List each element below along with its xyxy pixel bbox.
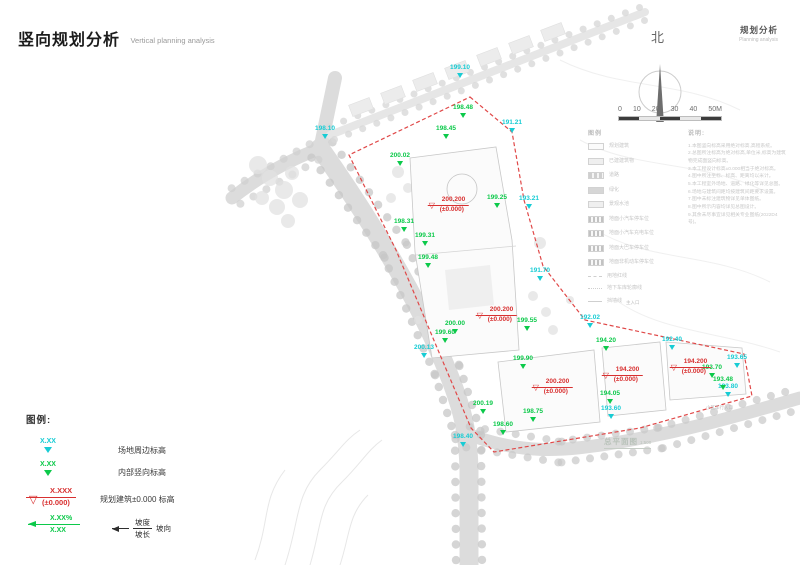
street-tree-icon bbox=[636, 4, 643, 11]
street-tree-icon bbox=[430, 98, 437, 105]
internal-elevation-marker: 200.19 bbox=[473, 401, 493, 414]
elevation-triangle-icon bbox=[669, 345, 675, 350]
internal-elevation-triangle-icon bbox=[44, 470, 52, 476]
street-tree-icon bbox=[787, 408, 795, 416]
base-legend-label: 地面大巴车停车位 bbox=[609, 246, 649, 251]
legend-datum-symbol: ▽ X.XXX (±0.000) bbox=[26, 486, 76, 508]
street-tree-icon bbox=[241, 177, 249, 185]
street-tree-icon bbox=[524, 453, 532, 461]
north-label: 北 bbox=[651, 27, 664, 46]
internal-elevation-marker: 193.48 bbox=[713, 377, 733, 390]
street-tree-icon bbox=[447, 422, 455, 430]
street-tree-icon bbox=[306, 140, 314, 148]
elevation-triangle-icon bbox=[425, 263, 431, 268]
street-tree-icon bbox=[539, 456, 547, 464]
legend-slope-symbol: X.XX% X.XX bbox=[28, 515, 80, 534]
datum-triangle-icon: ▽ bbox=[603, 371, 609, 381]
street-tree-icon bbox=[528, 60, 535, 67]
elevation-value: 192.40 bbox=[662, 336, 682, 343]
street-tree-icon bbox=[314, 156, 322, 164]
elevation-triangle-icon bbox=[608, 414, 614, 419]
building-datum-label: ▽200.200(±0.000) bbox=[532, 378, 573, 396]
base-plan-legend-rows: 规划建筑已建建筑物道路绿化景观水池地面小汽车停车位地面小汽车充电车位地面大巴车停… bbox=[588, 143, 654, 304]
street-tree-icon bbox=[557, 50, 564, 57]
street-tree-icon bbox=[486, 77, 493, 84]
elevation-value: 198.48 bbox=[453, 104, 473, 111]
internal-elevation-marker: 199.31 bbox=[415, 233, 435, 246]
base-legend-label: 地面小汽车充电车位 bbox=[609, 231, 654, 236]
base-legend-label: 道路 bbox=[609, 173, 619, 178]
elevation-value: 199.31 bbox=[415, 232, 435, 239]
slope-direction-arrow-icon bbox=[112, 528, 129, 529]
site-elevation-marker: 193.65 bbox=[727, 355, 747, 368]
site-elevation-marker: 192.02 bbox=[580, 315, 600, 328]
street-tree-icon bbox=[444, 93, 451, 100]
street-tree-icon bbox=[335, 191, 343, 199]
base-plan-title: 总平面图1:500 bbox=[604, 436, 651, 449]
elevation-value: 198.40 bbox=[453, 433, 473, 440]
elevation-value: 199.55 bbox=[517, 317, 537, 324]
street-tree-icon bbox=[451, 447, 459, 455]
street-tree-icon bbox=[627, 22, 634, 29]
street-tree-icon bbox=[478, 556, 486, 564]
street-tree-icon bbox=[542, 435, 550, 443]
elevation-value: 192.02 bbox=[580, 314, 600, 321]
elevation-value: 199.10 bbox=[450, 64, 470, 71]
street-tree-icon bbox=[673, 440, 681, 448]
elevation-value: 193.48 bbox=[713, 376, 733, 383]
legend-internal-label: 内部竖向标高 bbox=[118, 467, 166, 478]
street-tree-icon bbox=[640, 426, 648, 434]
elevation-triangle-icon bbox=[520, 364, 526, 369]
elevation-value: 198.10 bbox=[315, 125, 335, 132]
scale-tick-label: 10 bbox=[633, 106, 641, 113]
street-tree-icon bbox=[383, 213, 391, 221]
elevation-triangle-icon bbox=[442, 338, 448, 343]
street-tree-icon bbox=[293, 148, 301, 156]
internal-elevation-marker: 198.75 bbox=[523, 409, 543, 422]
elevation-value: 199.90 bbox=[513, 355, 533, 362]
elevation-triangle-icon bbox=[322, 134, 328, 139]
elevation-value: 191.21 bbox=[502, 119, 522, 126]
legend-swatch-icon bbox=[588, 187, 604, 194]
street-tree-icon bbox=[365, 188, 373, 196]
slope-fraction: 坡度 坡长 bbox=[133, 518, 152, 540]
street-tree-icon bbox=[687, 436, 695, 444]
legend-swatch-icon bbox=[588, 172, 604, 179]
street-tree-icon bbox=[702, 432, 710, 440]
building-datum-label: ▽200.200(±0.000) bbox=[428, 196, 469, 214]
street-tree-icon bbox=[753, 396, 761, 404]
internal-elevation-marker: 194.05 bbox=[600, 391, 620, 404]
note-line: 2.总图所注标高为绝对标高,单位米,标高为建筑物完成面竖向标高。 bbox=[688, 150, 788, 165]
street-tree-icon bbox=[500, 71, 507, 78]
notes-lines: 1.本图竖向标高采用绝对标高,高程系统。2.总图所注标高为绝对标高,单位米,标高… bbox=[688, 143, 788, 227]
elevation-value: 193.60 bbox=[601, 405, 621, 412]
street-tree-icon bbox=[667, 420, 675, 428]
site-elevation-marker: 193.21 bbox=[519, 196, 539, 209]
site-elevation-marker: 199.10 bbox=[450, 65, 470, 78]
base-plan-legend: 图例 规划建筑已建建筑物道路绿化景观水池地面小汽车停车位地面小汽车充电车位地面大… bbox=[588, 131, 654, 311]
street-tree-icon bbox=[613, 28, 620, 35]
street-tree-icon bbox=[385, 264, 393, 272]
legend-site-marker-symbol: X.XX bbox=[40, 438, 56, 453]
elevation-value: 199.48 bbox=[418, 254, 438, 261]
base-legend-row: 道路 bbox=[588, 172, 654, 179]
street-tree-icon bbox=[301, 163, 309, 171]
site-elevation-marker: 198.10 bbox=[315, 126, 335, 139]
elevation-triangle-icon bbox=[421, 353, 427, 358]
building-datum-label: ▽194.200(±0.000) bbox=[602, 366, 643, 384]
elevation-triangle-icon bbox=[537, 276, 543, 281]
note-line: 8.图中所示内容均详见总图设计。 bbox=[688, 204, 788, 212]
street-tree-icon bbox=[629, 448, 637, 456]
roads-layer bbox=[232, 12, 800, 565]
street-tree-icon bbox=[558, 458, 566, 466]
street-tree-icon bbox=[622, 9, 629, 16]
elevation-triangle-icon bbox=[524, 326, 530, 331]
street-tree-icon bbox=[439, 80, 446, 87]
street-tree-icon bbox=[371, 241, 379, 249]
street-tree-icon bbox=[345, 131, 352, 138]
legend-line-icon bbox=[588, 288, 602, 289]
street-tree-icon bbox=[580, 26, 587, 33]
base-legend-row: 已建建筑物 bbox=[588, 158, 654, 165]
elevation-triangle-icon bbox=[460, 442, 466, 447]
notes-title: 说明: bbox=[688, 130, 788, 140]
street-tree-icon bbox=[730, 424, 738, 432]
street-tree-icon bbox=[477, 509, 485, 517]
street-tree-icon bbox=[767, 392, 775, 400]
street-tree-icon bbox=[626, 428, 634, 436]
legend-slope-length: X.XX bbox=[28, 527, 80, 534]
street-tree-icon bbox=[477, 493, 485, 501]
street-tree-icon bbox=[537, 42, 544, 49]
base-legend-row: 景观水池 bbox=[588, 201, 654, 208]
street-tree-icon bbox=[744, 420, 752, 428]
slope-denominator: 坡长 bbox=[133, 529, 152, 539]
street-tree-icon bbox=[477, 462, 485, 470]
street-tree-icon bbox=[455, 362, 463, 370]
datum-triangle-icon: ▽ bbox=[477, 311, 483, 321]
legend-slope-direction: 坡度 坡长 坡向 bbox=[112, 518, 171, 540]
street-tree-icon bbox=[527, 433, 535, 441]
elevation-triangle-icon bbox=[480, 409, 486, 414]
street-tree-icon bbox=[337, 151, 345, 159]
note-line: 5.本工程室外场地、道路、绿化等详见总图。 bbox=[688, 181, 788, 189]
elevation-triangle-icon bbox=[603, 346, 609, 351]
elevation-triangle-icon bbox=[530, 417, 536, 422]
street-tree-icon bbox=[326, 179, 334, 187]
legend-swatch-icon bbox=[588, 259, 604, 266]
street-tree-icon bbox=[435, 383, 443, 391]
street-tree-icon bbox=[472, 82, 479, 89]
scale-tick-label: 20 bbox=[652, 106, 660, 113]
base-legend-label: 规划建筑 bbox=[609, 144, 629, 149]
elevation-value: 200.02 bbox=[390, 152, 410, 159]
street-tree-icon bbox=[659, 444, 667, 452]
street-tree-icon bbox=[452, 525, 460, 533]
scale-tick-label: 0 bbox=[618, 106, 622, 113]
base-legend-label: 地下车库轮廓线 bbox=[607, 286, 642, 291]
note-line: 9.其余未尽事宜详见相关专业图纸(2022D4号)。 bbox=[688, 212, 788, 227]
legend-swatch-icon bbox=[588, 230, 604, 237]
street-tree-icon bbox=[379, 251, 387, 259]
street-tree-icon bbox=[478, 446, 486, 454]
elevation-triangle-icon bbox=[587, 323, 593, 328]
datum-triangle-icon: ▽ bbox=[671, 363, 677, 373]
street-tree-icon bbox=[696, 412, 704, 420]
legend-title: 图例: bbox=[26, 412, 51, 426]
street-tree-icon bbox=[781, 388, 789, 396]
street-tree-icon bbox=[481, 425, 489, 433]
street-tree-icon bbox=[758, 416, 766, 424]
elevation-triangle-icon bbox=[457, 73, 463, 78]
internal-elevation-marker: 199.25 bbox=[487, 195, 507, 208]
note-line: 6.场地与建筑间距均按建筑间距要求设置。 bbox=[688, 189, 788, 197]
street-tree-icon bbox=[373, 120, 380, 127]
site-elevation-marker: 200.13 bbox=[414, 345, 434, 358]
base-legend-label: 绿化 bbox=[609, 188, 619, 193]
base-legend-row: 地面非机动车停车位 bbox=[588, 259, 654, 266]
elevation-value: 194.20 bbox=[596, 337, 616, 344]
street-tree-icon bbox=[236, 200, 244, 208]
legend-line-icon bbox=[588, 301, 602, 302]
base-plan-title-text: 总平面图 bbox=[604, 437, 638, 446]
elevation-value: 193.21 bbox=[519, 195, 539, 202]
elevation-triangle-icon bbox=[720, 385, 726, 390]
scale-tick-label: 30 bbox=[671, 106, 679, 113]
street-tree-icon bbox=[716, 428, 724, 436]
street-tree-icon bbox=[459, 375, 467, 383]
base-legend-label: 用地红线 bbox=[607, 274, 627, 279]
scale-tick-label: 40 bbox=[689, 106, 697, 113]
legend-datum-label: 规划建筑±0.000 标高 bbox=[100, 494, 175, 505]
street-tree-icon bbox=[430, 370, 438, 378]
scale-bar: 01020304050M bbox=[618, 106, 722, 121]
base-legend-row: 挡墙线 bbox=[588, 299, 654, 304]
note-line: 3.本工程设计标高±0.000相当于绝对标高。 bbox=[688, 166, 788, 174]
street-tree-icon bbox=[359, 125, 366, 132]
street-tree-icon bbox=[390, 278, 398, 286]
street-tree-icon bbox=[464, 388, 472, 396]
base-legend-row: 地面小汽车充电车位 bbox=[588, 230, 654, 237]
base-legend-row: 用地红线 bbox=[588, 274, 654, 279]
page-title: 竖向规划分析 Vertical planning analysis bbox=[18, 26, 215, 50]
internal-elevation-marker: 198.60 bbox=[493, 422, 513, 435]
elevation-triangle-icon bbox=[725, 392, 731, 397]
corner-label: 规划分析 Planning analysis bbox=[739, 24, 778, 43]
elevation-triangle-icon bbox=[443, 134, 449, 139]
street-tree-icon bbox=[615, 450, 623, 458]
note-line: 1.本图竖向标高采用绝对标高,高程系统。 bbox=[688, 143, 788, 151]
street-tree-icon bbox=[387, 114, 394, 121]
elevation-triangle-icon bbox=[422, 241, 428, 246]
street-tree-icon bbox=[396, 291, 404, 299]
street-tree-icon bbox=[514, 66, 521, 73]
street-tree-icon bbox=[228, 184, 236, 192]
internal-elevation-marker: 199.48 bbox=[418, 255, 438, 268]
base-legend-row: 绿化 bbox=[588, 187, 654, 194]
street-tree-icon bbox=[280, 155, 288, 163]
street-tree-icon bbox=[458, 87, 465, 94]
base-legend-label: 景观水池 bbox=[609, 202, 629, 207]
street-tree-icon bbox=[739, 400, 747, 408]
datum-triangle-icon: ▽ bbox=[29, 493, 37, 508]
street-tree-icon bbox=[267, 162, 275, 170]
elevation-triangle-icon bbox=[734, 363, 740, 368]
street-tree-icon bbox=[571, 44, 578, 51]
internal-elevation-marker: 198.31 bbox=[394, 219, 414, 232]
elevation-triangle-icon bbox=[526, 204, 532, 209]
elevation-value: 200.00 bbox=[445, 320, 465, 327]
legend-site-label: 场地周边标高 bbox=[118, 445, 166, 456]
street-tree-icon bbox=[439, 396, 447, 404]
legend-swatch-icon bbox=[588, 158, 604, 165]
slope-direction-label: 坡向 bbox=[156, 523, 171, 534]
base-plan-legend-title: 图例 bbox=[588, 131, 654, 137]
elevation-triangle-icon bbox=[607, 399, 613, 404]
base-legend-row: 地下车库轮廓线 bbox=[588, 286, 654, 291]
site-elevation-marker: 193.60 bbox=[601, 406, 621, 419]
slope-numerator: 坡度 bbox=[133, 518, 152, 529]
legend-site-value: X.XX bbox=[40, 438, 56, 445]
scale-tick-label: 50M bbox=[708, 106, 722, 113]
elevation-value: 199.60 bbox=[435, 329, 455, 336]
street-tree-icon bbox=[451, 462, 459, 470]
street-tree-icon bbox=[347, 163, 355, 171]
notes-block: 说明: 1.本图竖向标高采用绝对标高,高程系统。2.总图所注标高为绝对标高,单位… bbox=[688, 130, 788, 227]
street-tree-icon bbox=[452, 540, 460, 548]
entrance-label: 主入口 bbox=[626, 300, 640, 306]
street-tree-icon bbox=[452, 556, 460, 564]
note-line: 7.图中未标注建筑物详见单体图纸。 bbox=[688, 196, 788, 204]
street-tree-icon bbox=[356, 176, 364, 184]
street-tree-icon bbox=[585, 39, 592, 46]
base-legend-label: 地面小汽车停车位 bbox=[609, 217, 649, 222]
street-tree-icon bbox=[451, 509, 459, 517]
elevation-triangle-icon bbox=[460, 113, 466, 118]
elevation-value: 191.70 bbox=[530, 267, 550, 274]
street-tree-icon bbox=[594, 20, 601, 27]
site-elevation-triangle-icon bbox=[44, 447, 52, 453]
scale-bar-segments bbox=[618, 116, 722, 121]
page-title-en: Vertical planning analysis bbox=[130, 36, 214, 45]
legend-internal-marker-symbol: X.XX bbox=[40, 461, 56, 476]
elevation-value: 198.75 bbox=[523, 408, 543, 415]
street-tree-icon bbox=[608, 15, 615, 22]
street-tree-icon bbox=[443, 409, 451, 417]
street-tree-icon bbox=[477, 478, 485, 486]
street-tree-icon bbox=[566, 31, 573, 38]
elevation-value: 200.19 bbox=[473, 400, 493, 407]
street-tree-icon bbox=[653, 424, 661, 432]
elevation-value: 198.45 bbox=[436, 125, 456, 132]
legend-swatch-icon bbox=[588, 143, 604, 150]
street-tree-icon bbox=[586, 454, 594, 462]
site-elevation-marker: 198.40 bbox=[453, 434, 473, 447]
elevation-value: 198.31 bbox=[394, 218, 414, 225]
datum-triangle-icon: ▽ bbox=[429, 201, 435, 211]
elevation-triangle-icon bbox=[494, 203, 500, 208]
street-tree-icon bbox=[773, 412, 781, 420]
legend-swatch-icon bbox=[588, 201, 604, 208]
internal-elevation-marker: 199.60 bbox=[435, 330, 455, 343]
base-legend-row: 地面小汽车停车位 bbox=[588, 216, 654, 223]
corner-label-cn: 规划分析 bbox=[739, 24, 778, 36]
street-tree-icon bbox=[402, 304, 410, 312]
elevation-triangle-icon bbox=[500, 430, 506, 435]
street-tree-icon bbox=[478, 524, 486, 532]
base-legend-label: 已建建筑物 bbox=[609, 159, 634, 164]
elevation-value: 200.13 bbox=[414, 344, 434, 351]
street-tree-icon bbox=[425, 358, 433, 366]
street-tree-icon bbox=[316, 166, 324, 174]
street-tree-icon bbox=[414, 331, 422, 339]
street-tree-icon bbox=[362, 229, 370, 237]
legend-line-icon bbox=[588, 276, 602, 277]
base-legend-row: 规划建筑 bbox=[588, 143, 654, 150]
street-tree-icon bbox=[353, 216, 361, 224]
internal-elevation-marker: 200.02 bbox=[390, 153, 410, 166]
site-elevation-marker: 192.40 bbox=[662, 337, 682, 350]
elevation-value: 193.65 bbox=[727, 354, 747, 361]
street-tree-icon bbox=[307, 154, 315, 162]
street-tree-icon bbox=[402, 109, 409, 116]
site-elevation-marker: 191.21 bbox=[502, 120, 522, 133]
elevation-value: 199.25 bbox=[487, 194, 507, 201]
datum-triangle-icon: ▽ bbox=[533, 383, 539, 393]
base-legend-label: 地面非机动车停车位 bbox=[609, 260, 654, 265]
legend-swatch-icon bbox=[588, 216, 604, 223]
internal-elevation-marker: 199.90 bbox=[513, 356, 533, 369]
street-tree-icon bbox=[451, 478, 459, 486]
street-tree-icon bbox=[600, 452, 608, 460]
elevation-triangle-icon bbox=[397, 161, 403, 166]
street-tree-icon bbox=[641, 17, 648, 24]
street-tree-icon bbox=[478, 540, 486, 548]
legend-swatch-icon bbox=[588, 245, 604, 252]
building-datum-label: ▽200.200(±0.000) bbox=[476, 306, 517, 324]
street-tree-icon bbox=[340, 118, 347, 125]
elevation-value: 194.05 bbox=[600, 390, 620, 397]
street-tree-icon bbox=[403, 241, 411, 249]
legend-internal-value: X.XX bbox=[40, 461, 56, 468]
drawing-sheet: 竖向规划分析 Vertical planning analysis 规划分析 P… bbox=[0, 0, 800, 565]
base-legend-label: 挡墙线 bbox=[607, 299, 622, 304]
note-line: 4.图中所注坐标、标高、距离均以米计。 bbox=[688, 173, 788, 181]
elevation-value: 198.60 bbox=[493, 421, 513, 428]
page-title-cn: 竖向规划分析 bbox=[18, 32, 120, 49]
street-tree-icon bbox=[416, 104, 423, 111]
street-tree-icon bbox=[344, 204, 352, 212]
elevation-triangle-icon bbox=[401, 227, 407, 232]
internal-elevation-marker: 194.20 bbox=[596, 338, 616, 351]
elevation-triangle-icon bbox=[509, 128, 515, 133]
slope-arrow-icon bbox=[28, 524, 80, 525]
corner-label-en: Planning analysis bbox=[739, 37, 778, 43]
internal-elevation-marker: 198.45 bbox=[436, 126, 456, 139]
street-tree-icon bbox=[472, 414, 480, 422]
base-plan-scale: 1:500 bbox=[640, 440, 651, 445]
internal-elevation-marker: 198.48 bbox=[453, 105, 473, 118]
street-tree-icon bbox=[411, 91, 418, 98]
street-tree-icon bbox=[572, 456, 580, 464]
street-tree-icon bbox=[682, 416, 690, 424]
scale-bar-labels: 01020304050M bbox=[618, 106, 722, 113]
building-datum-label: ▽194.200(±0.000) bbox=[670, 358, 711, 376]
street-tree-icon bbox=[542, 55, 549, 62]
